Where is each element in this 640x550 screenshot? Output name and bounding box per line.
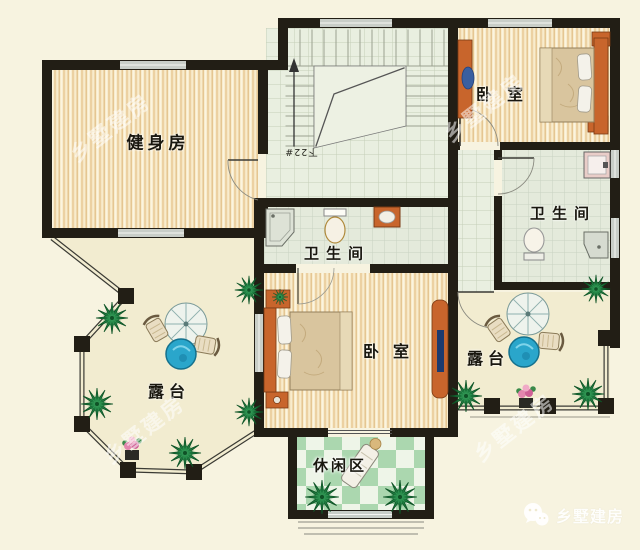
window <box>488 19 552 27</box>
sink-icon <box>374 207 400 227</box>
wechat-bubbles-icon <box>522 502 550 528</box>
window <box>120 61 186 69</box>
window <box>255 314 263 372</box>
pillar <box>120 462 136 478</box>
pillar <box>540 398 556 414</box>
brand-text: 乡墅建房 <box>556 503 624 527</box>
dresser-icon <box>458 40 474 118</box>
terrace-right-label: 露台 <box>467 345 509 369</box>
bedroom-top-label: 卧室 <box>476 81 538 105</box>
leisure-area-label: 休闲区 <box>313 455 367 476</box>
toilet-icon <box>324 209 346 243</box>
brand-logo: 乡墅建房 <box>522 502 624 528</box>
pillar <box>74 416 90 432</box>
stairs-annotation: 下22# <box>284 146 318 160</box>
pillar <box>74 336 90 352</box>
bathroom-center-label: 卫生间 <box>304 243 370 264</box>
console-icon <box>432 300 448 398</box>
window <box>611 218 619 258</box>
bedroom-center-label: 卧室 <box>363 338 423 362</box>
table-icon <box>166 339 196 369</box>
corridor-floor <box>456 150 494 292</box>
gym-label: 健身房 <box>127 129 190 154</box>
window <box>320 19 392 27</box>
entry-steps <box>298 522 424 534</box>
sliding-door-leisure <box>328 431 392 434</box>
toilet-icon <box>524 228 544 260</box>
pillar <box>118 288 134 304</box>
umbrella-icon <box>507 293 549 335</box>
bathroom-right-label: 卫生间 <box>530 203 596 224</box>
pillar <box>186 464 202 480</box>
terrace-left-label: 露台 <box>148 378 190 402</box>
pillar <box>484 398 500 414</box>
window <box>611 150 619 178</box>
floor-plan: 健身房 卧室 卫生间 卫生间 卧室 露台 露台 休闲区 下22# 乡墅建房 乡墅… <box>0 0 640 550</box>
window <box>118 229 184 237</box>
table-icon <box>509 337 539 367</box>
sink-icon <box>584 152 610 178</box>
window <box>328 511 392 518</box>
